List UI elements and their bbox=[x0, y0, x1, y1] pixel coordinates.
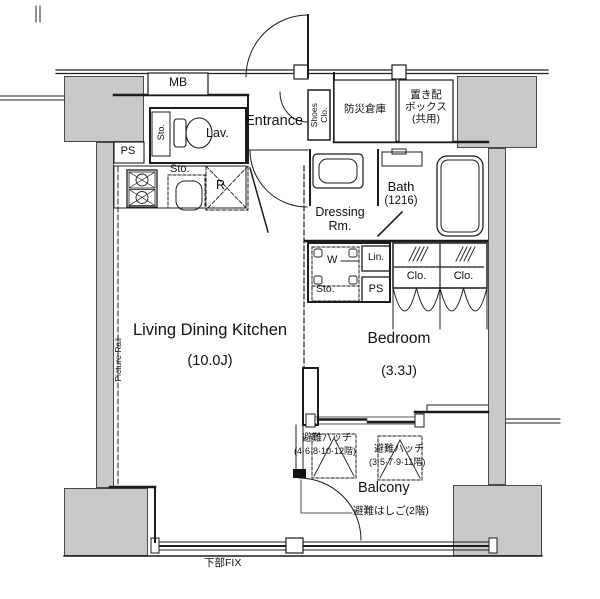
picture-rail-label: Picture Rail bbox=[114, 329, 124, 391]
disaster-storage-label: 防災倉庫 bbox=[334, 103, 396, 115]
ldk-south-wall bbox=[110, 487, 155, 542]
dressing-room bbox=[310, 150, 363, 205]
corridor-door-posts bbox=[294, 65, 406, 79]
delivery-box-label: 置き配 ボックス (共用) bbox=[399, 89, 453, 125]
refrigerator-label: R bbox=[216, 178, 225, 192]
bathtub-icon bbox=[437, 156, 483, 236]
hatch-1-floors-label: (4·6·8·10·12階) bbox=[294, 446, 356, 456]
ps-lower-label: PS bbox=[362, 283, 390, 296]
closet-hatch-marks bbox=[409, 247, 475, 261]
hall-door-leaf bbox=[250, 168, 268, 232]
bath-label: Bath (1216) bbox=[376, 180, 426, 208]
bedroom-window bbox=[306, 405, 488, 427]
bedroom-name-label: Bedroom bbox=[328, 330, 470, 348]
lavatory-storage-label: Sto. bbox=[156, 114, 166, 150]
linen-label: Lin. bbox=[362, 252, 390, 264]
ldk-size-label: (10.0J) bbox=[112, 353, 308, 370]
escape-ladder-label: 避難はしご(2階) bbox=[353, 505, 429, 517]
shoes-closet-label: Shoes Clo. bbox=[309, 90, 329, 140]
hatch-2-floors-label: (3·5·7·9·11階) bbox=[369, 457, 425, 467]
stove-icon bbox=[127, 170, 157, 207]
kitchen-storage-label: Sto. bbox=[170, 163, 190, 176]
floor-plan: MB 防災倉庫 置き配 ボックス (共用) PS Sto. Lav. Entra… bbox=[0, 0, 600, 599]
washer-label: W bbox=[327, 254, 337, 267]
closets bbox=[393, 243, 487, 329]
hatch-1-name-label: 避難ハッチ bbox=[302, 433, 352, 445]
balcony-partition-block bbox=[293, 469, 306, 478]
bottom-fix-label: 下部FIX bbox=[204, 557, 241, 569]
ladder-leader-line bbox=[301, 480, 352, 513]
closet-folding-doors bbox=[393, 288, 487, 329]
bath-door-leaf bbox=[378, 212, 402, 236]
mb-label: MB bbox=[148, 76, 208, 90]
balcony-door-arc bbox=[299, 478, 361, 540]
closet-1-label: Clo. bbox=[395, 270, 438, 283]
plan-linework bbox=[0, 0, 600, 599]
kitchen-storage bbox=[168, 175, 205, 210]
storage-lower-label: Sto. bbox=[316, 283, 335, 295]
balcony-label: Balcony bbox=[358, 480, 410, 497]
entrance-label: Entrance bbox=[238, 113, 310, 130]
closet-2-label: Clo. bbox=[442, 270, 485, 283]
dressing-room-label: Dressing Rm. bbox=[306, 205, 374, 234]
refrigerator-space bbox=[206, 166, 248, 210]
ldk-name-label: Living Dining Kitchen bbox=[112, 321, 308, 340]
bedroom-size-label: (3.3J) bbox=[328, 362, 470, 378]
bottom-window-band bbox=[151, 538, 497, 553]
lavatory-label: Lav. bbox=[206, 126, 229, 140]
washbasin-icon bbox=[313, 154, 363, 188]
hatch-2-name-label: 避難ハッチ bbox=[374, 444, 424, 456]
ps-upper-label: PS bbox=[112, 145, 144, 158]
